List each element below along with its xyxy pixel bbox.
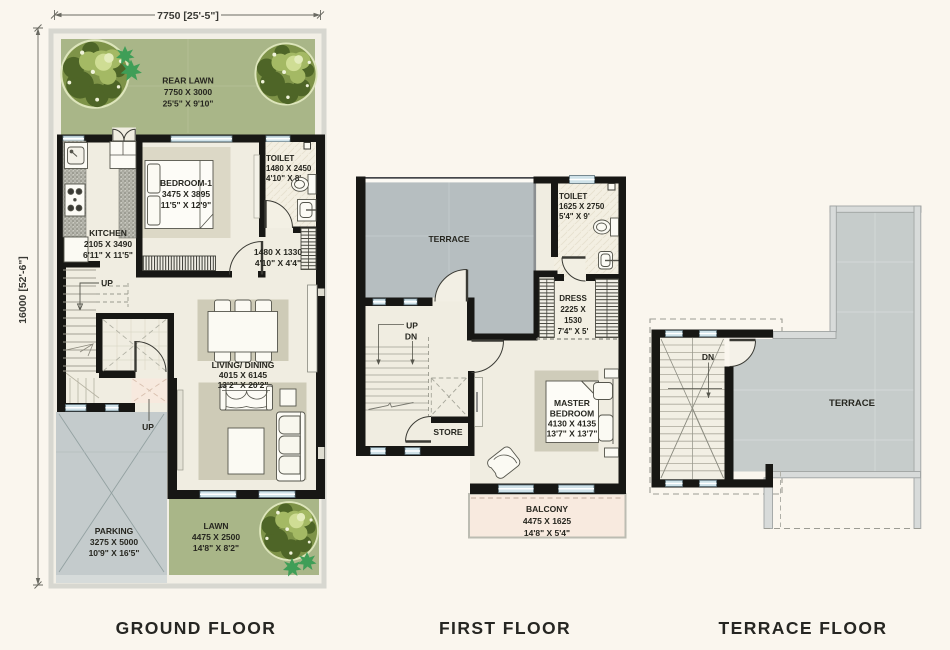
svg-text:BEDROOM: BEDROOM — [550, 409, 594, 419]
svg-text:DN: DN — [702, 352, 714, 362]
svg-text:REAR LAWN: REAR LAWN — [162, 76, 213, 86]
svg-text:LAWN: LAWN — [203, 521, 228, 531]
svg-text:1530: 1530 — [564, 316, 582, 325]
svg-text:13'7" X 13'7": 13'7" X 13'7" — [547, 429, 598, 439]
svg-text:DRESS: DRESS — [559, 294, 587, 303]
svg-text:6'11" X 11'5": 6'11" X 11'5" — [83, 250, 133, 260]
svg-text:UP: UP — [406, 321, 418, 331]
svg-text:3275 X 5000: 3275 X 5000 — [90, 537, 138, 547]
svg-text:7750 X 3000: 7750 X 3000 — [164, 87, 212, 97]
svg-text:TOILET: TOILET — [559, 192, 587, 201]
svg-text:BALCONY: BALCONY — [526, 504, 568, 514]
svg-text:1625 X 2750: 1625 X 2750 — [559, 202, 605, 211]
svg-text:KITCHEN: KITCHEN — [89, 228, 127, 238]
svg-text:TERRACE FLOOR: TERRACE FLOOR — [719, 618, 888, 638]
svg-text:3475 X 3895: 3475 X 3895 — [162, 189, 210, 199]
svg-text:BEDROOM-1: BEDROOM-1 — [160, 178, 212, 188]
svg-text:25'5" X 9'10": 25'5" X 9'10" — [163, 99, 214, 109]
svg-text:1480 X 2450: 1480 X 2450 — [266, 164, 312, 173]
svg-text:7750 [25'-5"]: 7750 [25'-5"] — [157, 10, 219, 22]
svg-text:4130 X 4135: 4130 X 4135 — [548, 419, 596, 429]
svg-text:DN: DN — [405, 332, 417, 342]
svg-text:STORE: STORE — [433, 427, 462, 437]
svg-text:UP: UP — [101, 278, 113, 288]
svg-text:UP: UP — [142, 422, 154, 432]
svg-text:7'4" X 5': 7'4" X 5' — [558, 327, 589, 336]
svg-text:TERRACE: TERRACE — [428, 234, 469, 244]
svg-text:16000 [52'-6"]: 16000 [52'-6"] — [17, 256, 29, 324]
svg-text:FIRST FLOOR: FIRST FLOOR — [439, 618, 571, 638]
svg-text:10'9" X 16'5": 10'9" X 16'5" — [89, 548, 140, 558]
svg-text:4475 X 1625: 4475 X 1625 — [523, 516, 571, 526]
svg-text:PARKING: PARKING — [95, 526, 134, 536]
svg-text:TOILET: TOILET — [266, 154, 294, 163]
svg-text:4'10" X 4'4": 4'10" X 4'4" — [255, 258, 301, 268]
svg-text:11'5" X 12'9": 11'5" X 12'9" — [161, 200, 211, 210]
svg-text:GROUND FLOOR: GROUND FLOOR — [116, 618, 277, 638]
svg-text:4015 X 6145: 4015 X 6145 — [219, 370, 267, 380]
svg-text:2225 X: 2225 X — [560, 305, 586, 314]
svg-text:4475 X 2500: 4475 X 2500 — [192, 532, 240, 542]
svg-text:13'2" X 20'2": 13'2" X 20'2" — [218, 380, 269, 390]
svg-text:LIVING/ DINING: LIVING/ DINING — [212, 360, 275, 370]
svg-text:2105 X 3490: 2105 X 3490 — [84, 239, 132, 249]
svg-text:5'4" X 9': 5'4" X 9' — [559, 212, 590, 221]
svg-text:MASTER: MASTER — [554, 398, 590, 408]
svg-text:TERRACE: TERRACE — [829, 398, 875, 409]
svg-text:4'10" X 8': 4'10" X 8' — [266, 174, 301, 183]
svg-text:14'8" X 5'4": 14'8" X 5'4" — [524, 528, 570, 538]
svg-text:1480 X 1330: 1480 X 1330 — [254, 247, 302, 257]
svg-text:14'8" X 8'2": 14'8" X 8'2" — [193, 543, 239, 553]
